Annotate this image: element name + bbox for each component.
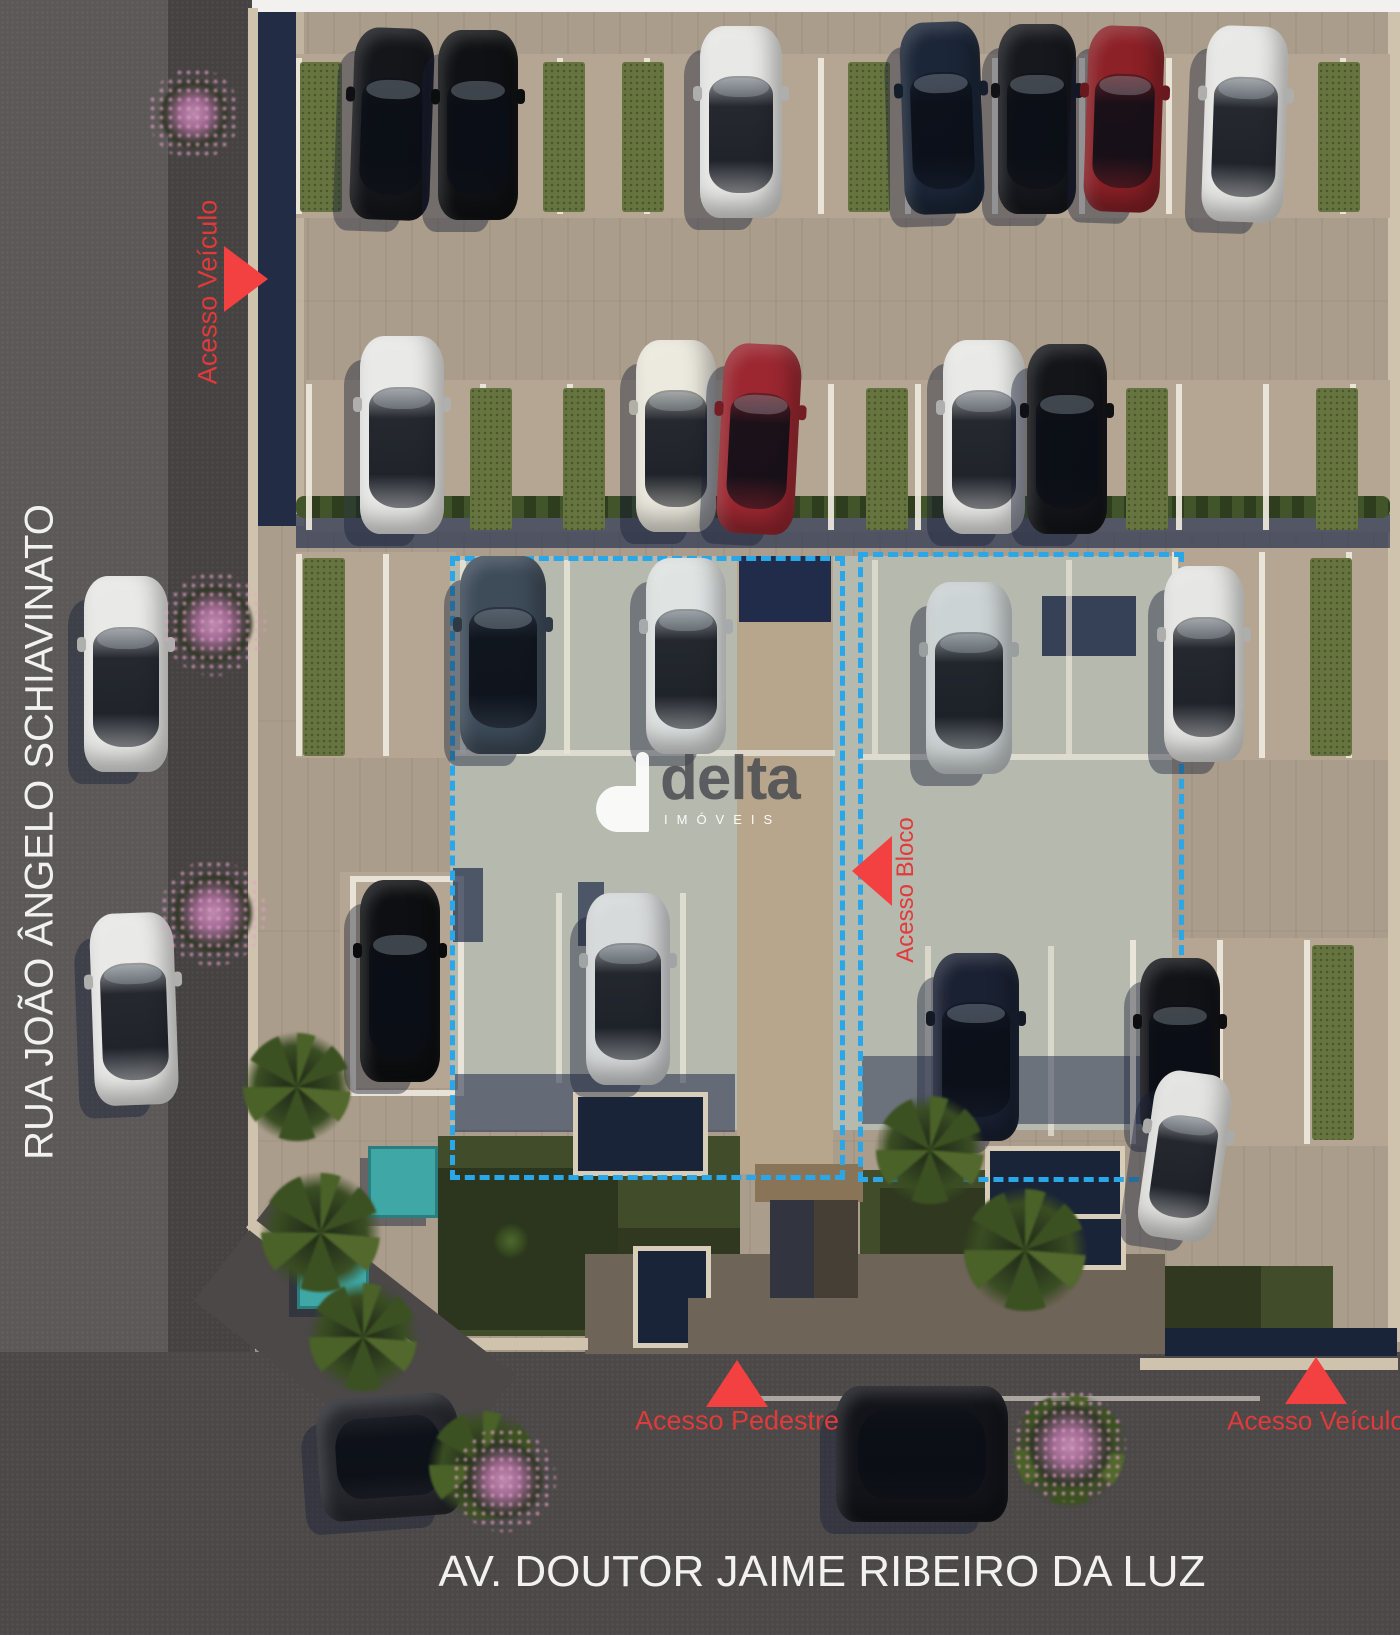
decor-rect bbox=[688, 1298, 960, 1354]
car-windshield bbox=[373, 389, 430, 409]
grass-strip bbox=[1310, 558, 1352, 756]
car-windshield bbox=[1040, 395, 1094, 414]
car bbox=[998, 24, 1076, 214]
site-plan-scene: Acesso Veículo Acesso Bloco Acesso Pedes… bbox=[0, 0, 1400, 1635]
car bbox=[646, 558, 726, 754]
decor-rect bbox=[1140, 1358, 1398, 1370]
car bbox=[349, 27, 436, 222]
car bbox=[1083, 25, 1165, 214]
car-windshield bbox=[474, 609, 533, 629]
car bbox=[636, 340, 716, 532]
street-name-left: RUA JOÃO ÂNGELO SCHIAVINATO bbox=[18, 504, 63, 1160]
grass-strip bbox=[543, 62, 585, 212]
car-windshield bbox=[1153, 1007, 1207, 1025]
watermark-subtitle: IMÓVEIS bbox=[664, 812, 800, 827]
grass-strip bbox=[470, 388, 512, 530]
car-windshield bbox=[599, 945, 656, 964]
block-access-label: Acesso Bloco bbox=[892, 817, 920, 962]
car bbox=[836, 1386, 1008, 1522]
street-name-bottom: AV. DOUTOR JAIME RIBEIRO DA LUZ bbox=[439, 1547, 1206, 1597]
car bbox=[943, 340, 1025, 534]
car-windshield bbox=[1010, 75, 1063, 94]
car bbox=[926, 582, 1012, 774]
grass-strip bbox=[563, 388, 605, 530]
car bbox=[1027, 344, 1107, 534]
car-windshield bbox=[97, 629, 154, 649]
grass-strip bbox=[303, 558, 345, 756]
palm-tree bbox=[222, 1012, 372, 1162]
grass-strip bbox=[1126, 388, 1168, 530]
grass-strip bbox=[1312, 945, 1354, 1140]
car-windshield bbox=[956, 392, 1012, 411]
block-access-arrow bbox=[852, 836, 892, 906]
grass-strip bbox=[848, 62, 890, 212]
decor-rect bbox=[252, 0, 1400, 12]
car-windshield bbox=[947, 1004, 1006, 1023]
pedestrian-access-label: Acesso Pedestre bbox=[635, 1406, 839, 1437]
car-windshield bbox=[373, 935, 427, 955]
car bbox=[460, 556, 546, 754]
car bbox=[84, 576, 168, 772]
car bbox=[89, 912, 180, 1107]
car-windshield bbox=[1218, 78, 1274, 100]
grass-strip bbox=[622, 62, 664, 212]
car-windshield bbox=[940, 634, 999, 653]
flowering-bush bbox=[148, 68, 240, 160]
grass-strip bbox=[1316, 388, 1358, 530]
car-windshield bbox=[659, 611, 713, 631]
car-glass bbox=[858, 1409, 985, 1499]
flowering-bush bbox=[452, 1428, 556, 1532]
car bbox=[700, 26, 782, 218]
delta-logo-icon bbox=[596, 750, 654, 834]
flowering-bush bbox=[160, 860, 266, 966]
grass-strip bbox=[866, 388, 908, 530]
palm-tree bbox=[288, 1262, 438, 1412]
car-windshield bbox=[451, 81, 505, 100]
car bbox=[360, 336, 444, 534]
palm-tree bbox=[940, 1165, 1110, 1335]
shrub bbox=[488, 1218, 534, 1264]
vehicle-access-label-top-left: Acesso Veículo bbox=[193, 200, 224, 385]
car bbox=[438, 30, 518, 220]
car-windshield bbox=[713, 78, 769, 97]
car bbox=[1164, 566, 1244, 762]
decor-rect bbox=[1165, 1328, 1397, 1356]
car-windshield bbox=[649, 392, 703, 411]
stall-line-row bbox=[306, 384, 1390, 530]
car bbox=[899, 21, 986, 216]
grass-strip bbox=[300, 62, 342, 212]
car-windshield bbox=[1177, 619, 1231, 639]
vehicle-access-arrow-top-left bbox=[224, 246, 268, 312]
vehicle-access-arrow-bottom-right bbox=[1285, 1357, 1347, 1404]
grass-strip bbox=[1318, 62, 1360, 212]
pedestrian-access-arrow bbox=[706, 1360, 768, 1407]
watermark-brand: delta bbox=[660, 750, 800, 808]
flowering-bush bbox=[162, 572, 266, 676]
vehicle-access-label-bottom-right: Acesso Veículo bbox=[1227, 1406, 1400, 1437]
flowering-bush bbox=[1014, 1390, 1126, 1502]
car bbox=[586, 893, 670, 1085]
delta-imoveis-watermark: delta IMÓVEIS bbox=[596, 750, 800, 834]
car bbox=[715, 342, 803, 536]
car bbox=[360, 880, 440, 1082]
car bbox=[1201, 25, 1290, 224]
